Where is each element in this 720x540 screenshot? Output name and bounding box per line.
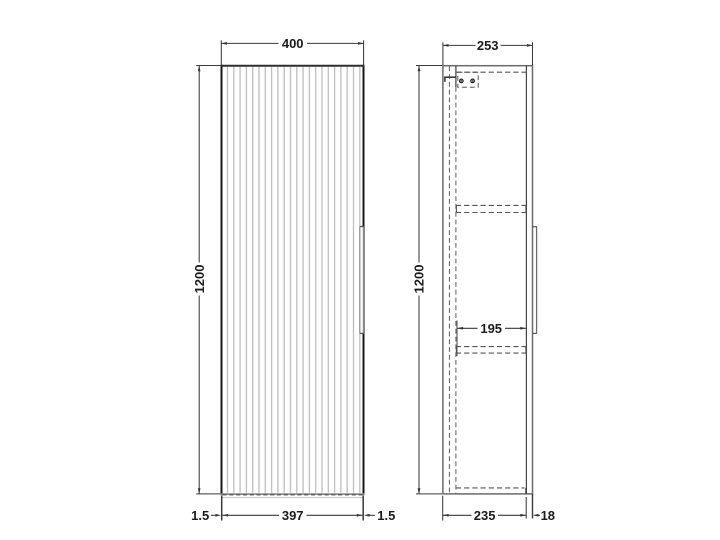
svg-text:195: 195 — [480, 321, 502, 336]
svg-text:1200: 1200 — [412, 265, 427, 294]
svg-text:1.5: 1.5 — [377, 508, 395, 523]
svg-text:235: 235 — [474, 508, 496, 523]
svg-text:18: 18 — [541, 508, 555, 523]
svg-text:397: 397 — [282, 508, 304, 523]
svg-text:400: 400 — [282, 36, 304, 51]
svg-text:1200: 1200 — [192, 265, 207, 294]
svg-text:1.5: 1.5 — [191, 508, 209, 523]
svg-text:253: 253 — [477, 38, 499, 53]
